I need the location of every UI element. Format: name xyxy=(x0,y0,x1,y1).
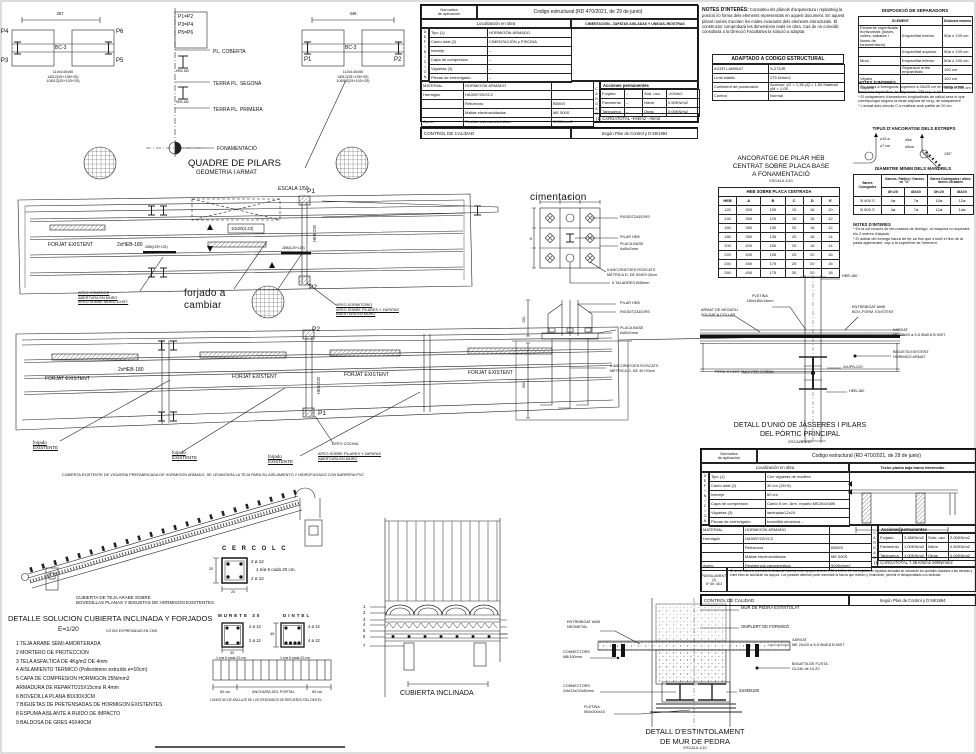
ciment-l2: PILAR HEB xyxy=(620,235,640,240)
table-cell: Nieve xyxy=(927,543,949,552)
portal-center: ANCHURA DEL PORTAL xyxy=(252,690,295,695)
acer-rows: ACER LAMINATS-275JRLímit elàstic275 N/mm… xyxy=(712,64,845,101)
norm1-material-table: MATERIALHORMIGÓN ARMADOHormigónHA30/F/20… xyxy=(421,81,594,127)
table-cell: 16 xyxy=(803,215,821,224)
pilar-a-beam: BC-3 xyxy=(55,45,66,51)
table-cell: Intereje xyxy=(430,47,488,56)
norm1-control-row: CONTROL DE CALIDAD Según Plan de Control… xyxy=(420,127,698,139)
heb-col-5: E xyxy=(829,198,832,203)
list-item: 6 BOVEDILLA PLANA 80X30X3CM xyxy=(16,693,162,702)
table-cell: 15 xyxy=(785,206,803,215)
cercol-bot: 2 ø 12 xyxy=(251,576,264,581)
plan2-forjat-1: FORJAT EXISTENT xyxy=(45,376,90,382)
dintel-a: 2 ø 12 xyxy=(308,624,320,629)
table-cell: 20 xyxy=(803,260,821,269)
heb-col-0: HEB xyxy=(723,198,731,203)
table-cell: – xyxy=(625,90,643,99)
table-cell: Refuerzos xyxy=(744,544,830,553)
heb-col-2: B xyxy=(771,198,774,203)
table-cell: 240 xyxy=(719,260,737,269)
norm1-acc-title: Acciones permanentes xyxy=(603,83,649,88)
estint-l7: CONNECTORS 2xM12s/20x80mm xyxy=(563,684,594,693)
table-cell: Coeficient de ponderació xyxy=(713,83,769,92)
table-cell: 18 xyxy=(821,269,839,278)
table-cell xyxy=(830,526,872,535)
table-cell: B 500 S xyxy=(854,206,882,215)
cubinc-num-2: 2 xyxy=(363,610,365,615)
table-cell: Normal xyxy=(769,92,845,101)
murete-b: 2 ø 12 xyxy=(249,638,261,643)
plan1-heb220: HEB-220 xyxy=(312,225,317,242)
unio-armat: ARMAT DE NEGATIU SOLDAT A COLLAR xyxy=(701,308,738,317)
table-cell: Sobr. uso xyxy=(927,534,949,543)
table-cell: 20 xyxy=(785,224,803,233)
mandrils-sub2: Ø<20 xyxy=(934,189,944,194)
table-cell xyxy=(422,109,464,118)
cubinc-num-4: 4 xyxy=(363,622,365,627)
unio-scale: ESCALA 1/10 xyxy=(710,440,890,445)
table-cell: ME 500S xyxy=(552,109,594,118)
pilar-b-beam: BC-3 xyxy=(345,45,356,51)
quadre-lvl1: PL. COBERTA xyxy=(213,49,246,55)
table-cell: Murs xyxy=(859,56,901,65)
cercol-dim-h: 20 xyxy=(209,567,213,572)
table-cell: 140 xyxy=(719,215,737,224)
table-cell: CIMENTACIÓN y PISCINA xyxy=(488,38,572,47)
heb-scale: ESCALA 1/10 xyxy=(706,179,856,184)
plan1-apeo-dormitorio: APEO DORMITORIO APEO SOBRE PILARES Y ZAP… xyxy=(336,303,399,317)
table-cell: Hormigón xyxy=(702,535,744,544)
pilar-b-p2: P2 xyxy=(394,57,401,64)
table-cell: Hormigón xyxy=(422,91,464,100)
portal-right: 60 cm xyxy=(312,690,322,695)
mandrils-sub1: Ø≥20 xyxy=(911,189,921,194)
ciment-dim-a-left: A xyxy=(529,237,534,240)
table-cell: 135 xyxy=(761,233,785,242)
ciment-l4: 6 ANCORATGES ROSCATS MÈTRICA D, DE 50/40… xyxy=(607,268,657,277)
table-cell: 2.00KN/m2 xyxy=(949,534,976,543)
ciment-dim-150: 150 xyxy=(522,317,527,323)
plan1-beam: 2xHEB-180 xyxy=(117,242,143,248)
table-cell: Emparrillat inferior xyxy=(901,26,943,48)
norm2-apunt-label: APUNTALAMIENTO (3) Gº Art. 48.3 xyxy=(701,574,727,586)
plan1-apeo-comedor: APEO COMEDOR ABERTURA EN MURO APEO SOBRE… xyxy=(78,291,128,305)
table-cell: 1.00KN/m2 xyxy=(903,543,927,552)
table-cell: Pavimento xyxy=(879,543,903,552)
table-cell: 7ø xyxy=(905,206,928,215)
table-cell: Intereje xyxy=(710,491,766,500)
plan2-forjat-3: FORJAT EXISTENT xyxy=(344,372,389,378)
table-cell: – xyxy=(488,65,572,74)
cubinc-num-1: 1 xyxy=(363,604,365,609)
heb-table: HEB SOBRE PLACA CENTRADA HEB A B C D E 1… xyxy=(718,187,840,278)
plan1-p2: P2 xyxy=(309,284,317,292)
table-cell: 20 xyxy=(803,251,821,260)
table-cell: 275 N/mm2 xyxy=(769,74,845,83)
portal-caption: LONGITUD DE ANCLAJE DE LOS REDONDOS DE R… xyxy=(210,699,322,703)
quadre-lvl2: TERRA PL. SEGONA xyxy=(213,81,261,87)
norm1-loc-value: CIMENTACIÓN– ZAPATAS AISLADAS Y UNIDAS–R… xyxy=(585,22,684,26)
pilar-b-p1: P1 xyxy=(304,57,311,64)
table-cell: 14 xyxy=(821,242,839,251)
table-cell: 450 xyxy=(737,269,761,278)
table-cell: 150 xyxy=(761,242,785,251)
table-cell: 105 xyxy=(761,206,785,215)
estint-title-2: DE MUR DE PEDRA xyxy=(620,737,770,746)
plan2-existing-3: forjado EXISTENTE xyxy=(268,454,293,465)
norm2-control-value: Según Plan de Control y D 59/1994 xyxy=(880,598,946,603)
cercol-section xyxy=(213,558,247,592)
table-cell: MATERIAL xyxy=(702,526,744,535)
table-cell: 350 xyxy=(737,215,761,224)
ciment-e2: RIGIDITZADORS xyxy=(620,310,650,315)
estint-l9: PLETINA 500x300x15 xyxy=(584,705,605,714)
plan2-forjat-2: FORJAT EXISTENT xyxy=(232,374,277,380)
separadors-col2: Distància màxima xyxy=(944,19,971,23)
unio-bigueta: BIGUETA EXISTENT HORMIGÓ ARMAT xyxy=(893,350,929,359)
table-cell: 16 xyxy=(803,206,821,215)
table-cell: 350 xyxy=(737,224,761,233)
table-cell xyxy=(422,100,464,109)
murete-e: 1 e/ø 6 cada 20 cm. xyxy=(216,656,247,660)
estreps-d2a: ≥5ø xyxy=(905,138,912,143)
table-cell: 100 cm xyxy=(943,65,973,74)
cubinc-num-5: 5 xyxy=(363,628,365,633)
table-cell: 160 xyxy=(719,224,737,233)
pilar-b-notes: 110x140x50 4Ø12(25+135+25) 10Ø12(25+100+… xyxy=(313,70,393,84)
cercol-title: C E R C O L C xyxy=(222,546,288,553)
ciment-dim-a-top: A xyxy=(568,195,571,200)
table-cell: 25 xyxy=(785,251,803,260)
plan2-existing-1: forjado EXISTENTE xyxy=(33,440,58,451)
norm2-loc-label: Localización en obra xyxy=(756,465,794,470)
estreps-hooks xyxy=(853,133,940,168)
murete-dim: 30 xyxy=(230,651,234,656)
table-cell: Resistencia característica xyxy=(464,118,552,127)
pilar-a-p5: P5 xyxy=(116,58,123,65)
mandrils-sub0: Ø<20 xyxy=(888,189,898,194)
table-cell: Pavimento xyxy=(601,99,625,108)
norm2-h-value: Codigo estructural (RD 470/2021, de 29 d… xyxy=(812,453,921,459)
table-cell: 10ø xyxy=(928,197,951,206)
separadors-col1: ELEMENT xyxy=(892,19,909,23)
heb-title-2: CENTRAT SOBRE PLACA BASE xyxy=(706,163,856,171)
table-cell: 15 xyxy=(785,215,803,224)
table-cell: 50ø o 100 cm xyxy=(943,26,973,48)
table-cell: 350 xyxy=(737,233,761,242)
unio-pletina: PLETINA 180x180x14mm xyxy=(742,294,778,303)
table-cell: HORMIGÓN ARMADO xyxy=(464,82,552,91)
separadors-notes: NOTES D'INTERÉS * En zones a formigonar … xyxy=(858,80,972,109)
pilar-section-a xyxy=(12,17,114,66)
pilar-a-p3: P3 xyxy=(1,58,8,65)
table-cell: 12ø xyxy=(928,206,951,215)
pilar-a-p6: P6 xyxy=(116,29,123,36)
table-cell: 260 xyxy=(719,269,737,278)
table-cell: 220 xyxy=(719,251,737,260)
estint-l2: OMPLERT DE FORMIGÓ xyxy=(741,624,789,629)
list-item: 8 ESPUMA AISLANTE A RUIDO DE IMPACTO xyxy=(16,710,162,719)
table-cell: 0.50KN/m2 xyxy=(667,99,700,108)
table-cell: 60 cm xyxy=(766,491,850,500)
ciment-l1: RIGIDITZADORS xyxy=(620,215,650,220)
table-cell: Forjado xyxy=(879,534,903,543)
table-cell: Sob. uso xyxy=(643,90,667,99)
table-cell: Límit elàstic xyxy=(713,74,769,83)
table-cell xyxy=(830,535,872,544)
norm1-control-label: CONTROL DE CALIDAD xyxy=(424,131,474,136)
table-cell: 180 xyxy=(719,233,737,242)
table-cell: Con viguetas de madera xyxy=(766,473,850,482)
plan2-beam: 2xHEB-180 xyxy=(118,367,144,373)
plan2-heb220: HEB-220 xyxy=(316,377,321,394)
table-cell: ME 500S xyxy=(830,553,872,562)
table-cell: 14ø xyxy=(951,206,974,215)
unio-title-1: DETALL D'UNIÓ DE JÀSSERES I PILARS xyxy=(710,422,890,430)
pilar-b-dim: 346 xyxy=(333,11,373,16)
table-cell: Capa de compresión xyxy=(430,56,488,65)
unio-title-2: DEL PÒRTIC PRINCIPAL xyxy=(710,431,890,439)
plan2-apeo-title: APEO COCINA xyxy=(332,442,358,447)
plan1-hand-note: forjado a cambiar xyxy=(184,288,226,312)
ciment-dim-500: 500 xyxy=(522,382,527,388)
detall-unio-linework xyxy=(700,275,900,443)
norm1-total: (1) CARGATOTAL –KN/m2 –/mm2 xyxy=(596,116,660,121)
table-cell xyxy=(552,91,594,100)
table-cell: 125 xyxy=(761,215,785,224)
estreps-d1a: ≥10 ø xyxy=(880,137,890,142)
list-item: 1 TEJA ARABE SEMI-AMORTERADA xyxy=(16,640,162,649)
list-item: 3 TELA ASFALTICA DE 4Kg/m2 DE 4mm xyxy=(16,658,162,667)
roof-note-bottom: CUBIERTA DE TEJA ARABE SOBRE BOVEDILLAS … xyxy=(76,595,214,606)
table-cell: 200 xyxy=(719,242,737,251)
mandrils-table: Barres Corrugades Ganxos, Patilles i Gan… xyxy=(853,174,974,215)
dintel-dim: 45 xyxy=(270,632,274,637)
estint-l1: MUR DE PEDRA ESTINTOLAT xyxy=(741,605,799,610)
norm1-control-value: Según Plan de Control y D 59/1994 xyxy=(602,131,668,136)
lista-note: COTAS EXPRESADAS EN CMS. xyxy=(106,629,158,633)
cimentacion-plan xyxy=(532,200,618,283)
table-cell: 30 cm (25+5) xyxy=(766,482,850,491)
table-cell xyxy=(552,82,594,91)
table-cell: 0.50KN/m2 xyxy=(949,543,976,552)
plan1-reinf-1: 2Ø8(125+125) xyxy=(145,245,168,249)
table-cell: Control xyxy=(713,92,769,101)
mandrils-h0: Barres Corrugades xyxy=(859,181,877,188)
plan2-forjat-4: FORJAT EXISTENT xyxy=(468,370,513,376)
quadre-profile-2: HEB-180 xyxy=(176,101,189,105)
norm2-def-table: Tipo (1)Con viguetas de maderaCanto tota… xyxy=(709,472,850,527)
table-cell: 16 xyxy=(821,260,839,269)
table-cell: – xyxy=(625,99,643,108)
unio-pern: PERN D'UNIÓ 2M12 PER CORBA xyxy=(715,370,774,375)
table-cell: Tipo (1) xyxy=(710,473,766,482)
heb-col-4: D xyxy=(811,198,814,203)
norm1-h-label: Normativa de aplicación xyxy=(438,8,460,16)
estint-l5: BIGUETA DE FUSTA GL24h de 10-20 xyxy=(792,662,828,671)
cercol-mid: 1 e/ø 6 cada 20 cm. xyxy=(256,567,296,572)
table-cell: Mallas electrosoldadas xyxy=(464,109,552,118)
plan1-p1: P1 xyxy=(307,188,315,196)
quadre-profile-1: HEB-180 xyxy=(176,70,189,74)
list-item: 2 MORTERO DE PROTECCION xyxy=(16,649,162,658)
table-cell: S-275JR xyxy=(769,65,845,74)
cubinc-num-7: 7 xyxy=(363,643,365,648)
plan2-existing-2: forjado EXISTENTE xyxy=(172,450,197,461)
mandrils-sub3: Ø≥20 xyxy=(957,189,967,194)
estint-title-1: DETALL D'ESTINTOLAMENT xyxy=(620,727,770,736)
table-cell: 16 xyxy=(803,242,821,251)
norm2-loc-value: Techo planta baja tramo intermedio xyxy=(881,466,945,470)
murete-a: 2 ø 12 xyxy=(249,624,261,629)
portal-left: 60 cm xyxy=(220,690,230,695)
heb-col-1: A xyxy=(747,198,750,203)
notes-interes: NOTES D'INTERÉS: Consulteu els plànols d… xyxy=(702,7,854,34)
table-cell xyxy=(702,544,744,553)
table-cell: MATERIAL xyxy=(422,82,464,91)
cercol-dim-w: 20 xyxy=(231,590,235,595)
table-cell: HA30/F/20/XC2 xyxy=(464,91,552,100)
norm1-def-letters: DEFINICION xyxy=(421,28,429,81)
separadors-notes-body: * En zones a formigonar superiors a 25x2… xyxy=(858,85,972,109)
acer-title: ADAPTADO A CODIGO ESTRUCTURAL xyxy=(731,56,824,62)
cad-sheet: 357 P4 P6 P3 P5 BC-3 110x140x50 4Ø12(25+… xyxy=(0,0,976,754)
mandrils-title: DIÀMETRE MÍNIM DELS MANDRILS xyxy=(853,166,973,171)
table-cell: Viguetas (3) xyxy=(430,65,488,74)
table-cell: 16 xyxy=(803,233,821,242)
table-cell: 12 xyxy=(821,224,839,233)
plan2-p1: P1 xyxy=(318,410,326,418)
table-cell xyxy=(859,65,901,74)
estint-l3: ENTREBIGAT AMB NEOMETAL xyxy=(567,620,600,629)
table-cell: 7ø xyxy=(905,197,928,206)
table-cell: 12ø xyxy=(951,197,974,206)
notes-interes-title: NOTES D'INTERÉS: xyxy=(702,7,749,13)
table-cell: Forjado xyxy=(601,90,625,99)
table-cell: Nieve xyxy=(643,99,667,108)
table-cell: HA30/F/20/XC3 xyxy=(744,535,830,544)
table-cell: 120 xyxy=(719,206,737,215)
pilar-a-dim: 357 xyxy=(40,11,80,16)
table-cell: 25 xyxy=(785,260,803,269)
estreps-d2b: ≥5cm xyxy=(905,145,914,150)
unio-xarxat: XARXAT ME 20x20 ø 5-5 ØxØ,8 B 500T xyxy=(893,328,945,337)
table-cell: Separació entre emparrillats xyxy=(901,65,943,74)
table-cell: 12 xyxy=(821,215,839,224)
table-cell: 30 xyxy=(785,269,803,278)
estintolament-linework xyxy=(590,598,790,730)
table-cell: HORMIGÓN ARMADO xyxy=(488,29,572,38)
norm2-control-label: CONTROL DE CALIDAD xyxy=(704,598,754,603)
table-cell: Capa de compresión xyxy=(710,500,766,509)
norm2-h-label: Normativa de aplicación xyxy=(718,452,740,460)
estreps-d1b: ≥7 cm xyxy=(880,144,890,149)
table-cell xyxy=(859,47,901,56)
plan1-scale: ESCALA 1/50 xyxy=(278,186,309,192)
heb-title-3: A FONAMENTACIÓ xyxy=(706,171,856,179)
heb-col-3: C xyxy=(793,198,796,203)
table-cell: Tipo (1) xyxy=(430,29,488,38)
table-cell: Acero xyxy=(422,118,464,127)
plan1-box: 10x20(4.23) xyxy=(231,226,253,231)
ciment-e1: PILAR HEB xyxy=(620,301,640,306)
mandrils-notes-body: * En la col·locació de les masses de for… xyxy=(853,227,973,246)
unio-upn: 2xUPN-220 xyxy=(843,365,863,370)
cubinc-title: CUBIERTA INCLINADA xyxy=(400,690,474,698)
cubierta-inclinada-section xyxy=(370,518,508,697)
norm2-apunt-text: Si no se indica lo contrario la distanci… xyxy=(730,569,975,577)
table-cell: 175 xyxy=(761,269,785,278)
table-cell: Refuerzos xyxy=(464,100,552,109)
table-cell: 10 xyxy=(821,206,839,215)
estint-l8: 2xHEB180 xyxy=(739,688,759,693)
table-cell: 130 xyxy=(761,224,785,233)
heb-band: HEB SOBRE PLACA CENTRADA xyxy=(747,189,812,194)
norm1-h-value: Codigo estructural (RD 470/2021, de 29 d… xyxy=(534,9,643,15)
dintel-e: 1 e/ø 6 cada 20 cm. xyxy=(280,656,311,660)
mandrils-h2: Barres Doblegades i altres barres corbad… xyxy=(930,177,970,184)
norm1-loc-label: Localización en obra xyxy=(477,21,515,26)
cimentacion-elevation xyxy=(512,300,632,420)
table-cell: 500N/mm2 xyxy=(552,118,594,127)
dintel-b: 4 ø 12 xyxy=(308,638,320,643)
norm2-acc-title: Acciones permanentes xyxy=(881,527,927,532)
cubinc-num-6: 6 xyxy=(363,634,365,639)
table-cell: Mallas electrosoldadas xyxy=(744,553,830,562)
pilar-section-b xyxy=(302,17,404,168)
estint-scale: ESCALA 1/10 xyxy=(620,746,770,751)
table-cell: B500S xyxy=(830,544,872,553)
table-cell: 450 xyxy=(737,260,761,269)
murete-title: MURETE 30 xyxy=(218,613,261,618)
heb-title-1: ANCORATGE DE PILAR HEB xyxy=(706,155,856,163)
table-cell: 16 xyxy=(821,251,839,260)
table-cell: – xyxy=(488,56,572,65)
lista-title: DETALLE SOLUCION CUBIERTA INCLINADA Y FO… xyxy=(8,614,212,623)
norm2-def-letters: DEFINICION xyxy=(701,472,709,525)
list-item: 5 CAPA DE COMPRESION HORMIGON 25N/mm2 xyxy=(16,675,162,684)
table-cell: 4ø xyxy=(882,197,905,206)
pilar-a-notes: 110x140x50 4Ø12(25+135+25) 10Ø12(25+100+… xyxy=(23,70,103,84)
estreps-angle: 135° xyxy=(944,152,952,157)
table-cell: Accions: γG = 1,35 γQ = 1,50 Material γM… xyxy=(769,83,845,92)
table-cell: HORMIGÓN ARMADO xyxy=(744,526,830,535)
estreps-title: TIPUS D'ANCORATGE DELS ESTREPS xyxy=(855,126,973,131)
table-cell: B500S xyxy=(552,100,594,109)
unio-heb-top: HEB-180 xyxy=(842,274,857,279)
mandrils-notes: NOTES D'INTERÉS * En la col·locació de l… xyxy=(853,222,973,246)
table-cell: 400 xyxy=(737,242,761,251)
norm2-material-table: MATERIALHORMIGÓN ARMADOHormigónHA30/F/20… xyxy=(701,525,872,571)
table-cell: –KN/m2 xyxy=(667,90,700,99)
table-cell: 20 xyxy=(785,233,803,242)
table-cell: 300 xyxy=(737,206,761,215)
table-cell: 50ø o 100 cm xyxy=(943,47,973,56)
separadors-title: DISPOSICIÓ DE SEPARADORS xyxy=(857,8,973,13)
table-cell: 14 xyxy=(821,233,839,242)
table-cell: B 400 S xyxy=(854,197,882,206)
unio-entrebigat: ENTREBIGAT AMB BOV.-FORM. EXISTENT xyxy=(852,305,894,314)
plan1-forjat: FORJAT EXISTENT xyxy=(48,242,93,248)
lista-scale: E=1/20 xyxy=(58,626,79,634)
table-cell: laminada/12x24 xyxy=(766,509,850,518)
table-cell: 400 xyxy=(737,251,761,260)
estint-l6: CONNECTORS M8/150mm xyxy=(563,650,590,659)
ciment-e3: PLACA BASE AxBxGmm xyxy=(620,326,643,335)
table-cell: Viguetas (3) xyxy=(710,509,766,518)
norm-table-techo: Normativa de aplicación Codigo estructur… xyxy=(700,448,976,592)
roof-slope xyxy=(22,488,323,590)
